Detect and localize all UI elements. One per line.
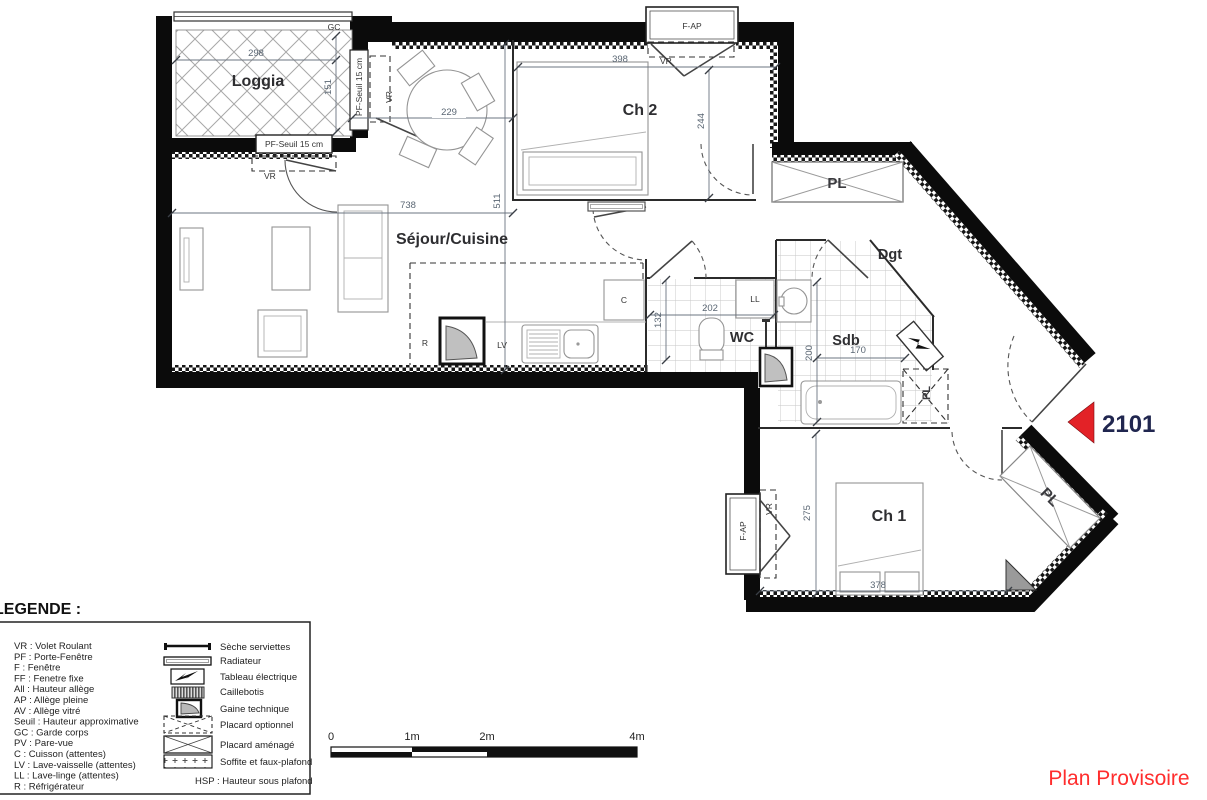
legend-sym-soffite: Soffite et faux-plafond	[220, 757, 312, 768]
legend-sym-gaine: Gaine technique	[220, 704, 289, 715]
scale-tick-0: 0	[328, 731, 334, 743]
unit-number: 2101	[1102, 411, 1155, 438]
legend-title: LEGENDE :	[0, 601, 81, 618]
scale-tick-4m: 4m	[629, 731, 644, 743]
room-label-loggia: Loggia	[232, 73, 285, 90]
label-vr-loggia-side: VR	[384, 91, 394, 103]
scale-tick-1m: 1m	[404, 731, 419, 743]
label-pf-seuil-side: PF-Seuil 15 cm	[354, 58, 364, 116]
sofa	[338, 205, 388, 312]
soffit-icon	[164, 755, 212, 768]
radiator-sejour	[588, 202, 645, 211]
toilet	[699, 318, 724, 353]
dim-ch2-depth: 244	[696, 113, 707, 129]
scale-bar: 0 1m 2m 4m	[328, 731, 645, 757]
dim-ch2-width: 398	[612, 54, 628, 65]
legend-abbr-pv: PV : Pare-vue	[14, 738, 73, 749]
vr-box-loggia-side	[370, 56, 390, 122]
electrical-panel-icon	[171, 669, 204, 684]
gaine-technique-icon	[177, 700, 201, 717]
legend-abbr-f: F : Fenêtre	[14, 663, 60, 674]
legend-abbr-r: R : Réfrigérateur	[14, 781, 84, 792]
label-f-ap-ch1: F-AP	[738, 521, 748, 541]
plan-labels: Loggia Séjour/Cuisine Ch 2 Ch 1 WC Sdb D…	[232, 21, 1190, 790]
label-vr-ch2: VR	[660, 56, 672, 66]
floor-plan-page: Loggia Séjour/Cuisine Ch 2 Ch 1 WC Sdb D…	[0, 0, 1207, 800]
legend: LEGENDE : VR : Volet Roulant PF : Porte-…	[0, 601, 313, 794]
caillebotis-icon	[172, 687, 204, 698]
towel-dryer-icon	[164, 643, 211, 650]
legend-sym-placard-opt: Placard optionnel	[220, 720, 293, 731]
legend-abbr-seuil: Seuil : Hauteur approximative	[14, 717, 139, 728]
legend-abbr-lv: LV : Lave-vaisselle (attentes)	[14, 760, 136, 771]
legend-sym-radiateur: Radiateur	[220, 656, 261, 667]
radiator-icon	[164, 657, 211, 665]
dim-loggia-width: 298	[248, 48, 264, 59]
legend-sym-tableau: Tableau électrique	[220, 672, 297, 683]
legend-abbr-pf: PF : Porte-Fenêtre	[14, 652, 93, 663]
dim-ch1-depth: 275	[802, 505, 813, 521]
dim-loggia-depth: 151	[323, 79, 334, 95]
kitchen	[410, 263, 646, 365]
dim-wc-width: 202	[702, 303, 718, 314]
legend-sym-seche: Sèche serviettes	[220, 642, 290, 653]
bathtub	[801, 381, 901, 424]
legend-abbr-all: All : Hauteur allège	[14, 684, 94, 695]
label-vr-loggia-bottom: VR	[264, 171, 276, 181]
dim-sejour-width: 738	[400, 200, 416, 211]
dim-sdb-width: 170	[850, 345, 866, 356]
dim-sejour-depth: 511	[492, 193, 503, 208]
dim-sdb-depth: 200	[804, 345, 815, 361]
legend-abbr-vr: VR : Volet Roulant	[14, 641, 92, 652]
dim-ch1-width: 378	[870, 580, 886, 591]
bed-ch2	[517, 62, 648, 195]
armchair	[258, 310, 307, 357]
dim-table-group: 229	[432, 106, 466, 118]
scale-tick-2m: 2m	[479, 731, 494, 743]
legend-sym-placard-ame: Placard aménagé	[220, 740, 294, 751]
gaine-technique-ch1	[1006, 560, 1036, 590]
vr-box-ch2	[648, 42, 734, 57]
label-cooktop: C	[621, 295, 627, 305]
label-f-ap-ch2: F-AP	[682, 21, 702, 31]
label-gc: GC	[328, 22, 341, 32]
fitted-closet-icon	[164, 736, 212, 753]
room-label-sejour: Séjour/Cuisine	[396, 231, 508, 248]
legend-symbol-icons	[164, 643, 212, 768]
label-dishwasher: LV	[497, 340, 507, 350]
legend-hsp: HSP : Hauteur sous plafond	[195, 776, 313, 787]
room-label-wc: WC	[730, 330, 755, 346]
entry-arrow-icon	[1068, 402, 1094, 443]
legend-abbr-ap: AP : Allège pleine	[14, 695, 88, 706]
closet-label-pl-hallway: PL	[827, 175, 846, 192]
legend-abbr-ll: LL : Lave-linge (attentes)	[14, 771, 119, 782]
label-vr-ch1: VR	[764, 503, 774, 515]
label-refrigerator: R	[422, 338, 428, 348]
label-pf-seuil-bottom: PF-Seuil 15 cm	[265, 139, 323, 149]
floor-plan-drawing: Loggia Séjour/Cuisine Ch 2 Ch 1 WC Sdb D…	[0, 0, 1207, 800]
coffee-table	[272, 227, 310, 290]
closet-label-pl-sdb: PL	[921, 386, 933, 400]
optional-closet-icon	[164, 716, 212, 733]
label-washing-machine: LL	[750, 294, 760, 304]
legend-abbr-av: AV : Allège vitré	[14, 706, 80, 717]
legend-sym-caillebotis: Caillebotis	[220, 687, 264, 698]
legend-abbr-ff: FF : Fenetre fixe	[14, 673, 84, 684]
dim-table: 229	[441, 107, 457, 118]
dim-wc-depth: 132	[653, 312, 664, 328]
tv-unit	[180, 228, 203, 290]
room-label-ch1: Ch 1	[872, 508, 907, 525]
room-label-dgt: Dgt	[878, 247, 902, 263]
legend-abbr-c: C : Cuisson (attentes)	[14, 749, 106, 760]
room-label-ch2: Ch 2	[623, 102, 658, 119]
legend-abbr-gc: GC : Garde corps	[14, 727, 89, 738]
watermark-plan-provisoire: Plan Provisoire	[1048, 767, 1189, 790]
bed-ch1	[836, 483, 923, 595]
